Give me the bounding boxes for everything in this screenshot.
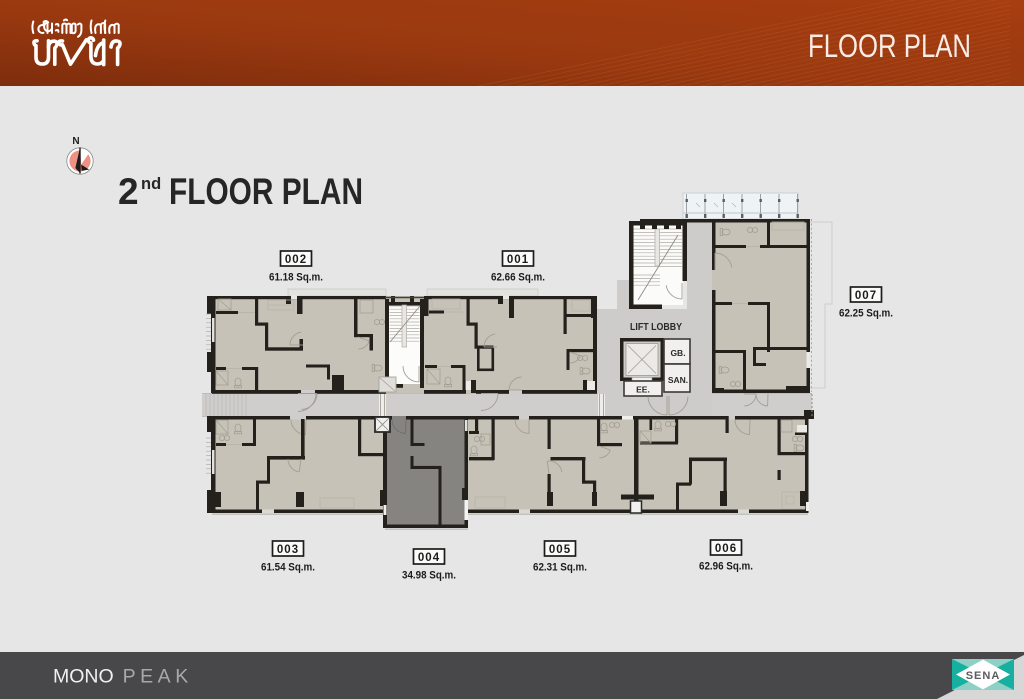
svg-text:LIFT LOBBY: LIFT LOBBY bbox=[630, 321, 682, 333]
svg-text:62.25 Sq.m.: 62.25 Sq.m. bbox=[839, 308, 893, 320]
svg-text:N: N bbox=[72, 136, 79, 147]
svg-text:006: 006 bbox=[715, 543, 737, 555]
svg-text:005: 005 bbox=[549, 544, 571, 556]
svg-text:62.66 Sq.m.: 62.66 Sq.m. bbox=[491, 272, 545, 284]
svg-text:MONOPEAK: MONOPEAK bbox=[53, 666, 193, 688]
svg-text:SAN.: SAN. bbox=[668, 375, 688, 385]
svg-text:001: 001 bbox=[507, 254, 529, 266]
svg-text:003: 003 bbox=[277, 544, 299, 556]
svg-text:SENA: SENA bbox=[966, 670, 1001, 682]
svg-text:61.54 Sq.m.: 61.54 Sq.m. bbox=[261, 562, 315, 574]
svg-text:34.98 Sq.m.: 34.98 Sq.m. bbox=[402, 570, 456, 582]
svg-text:007: 007 bbox=[855, 290, 877, 302]
svg-text:EE.: EE. bbox=[636, 385, 650, 395]
svg-text:62.96 Sq.m.: 62.96 Sq.m. bbox=[699, 561, 753, 573]
svg-text:2: 2 bbox=[118, 171, 139, 212]
svg-text:61.18 Sq.m.: 61.18 Sq.m. bbox=[269, 272, 323, 284]
svg-text:GB.: GB. bbox=[670, 348, 685, 358]
svg-text:62.31 Sq.m.: 62.31 Sq.m. bbox=[533, 562, 587, 574]
svg-text:004: 004 bbox=[418, 552, 440, 564]
svg-text:nd: nd bbox=[141, 175, 161, 193]
svg-text:FLOOR PLAN: FLOOR PLAN bbox=[808, 28, 971, 64]
svg-text:002: 002 bbox=[285, 254, 307, 266]
svg-text:FLOOR PLAN: FLOOR PLAN bbox=[169, 171, 363, 212]
